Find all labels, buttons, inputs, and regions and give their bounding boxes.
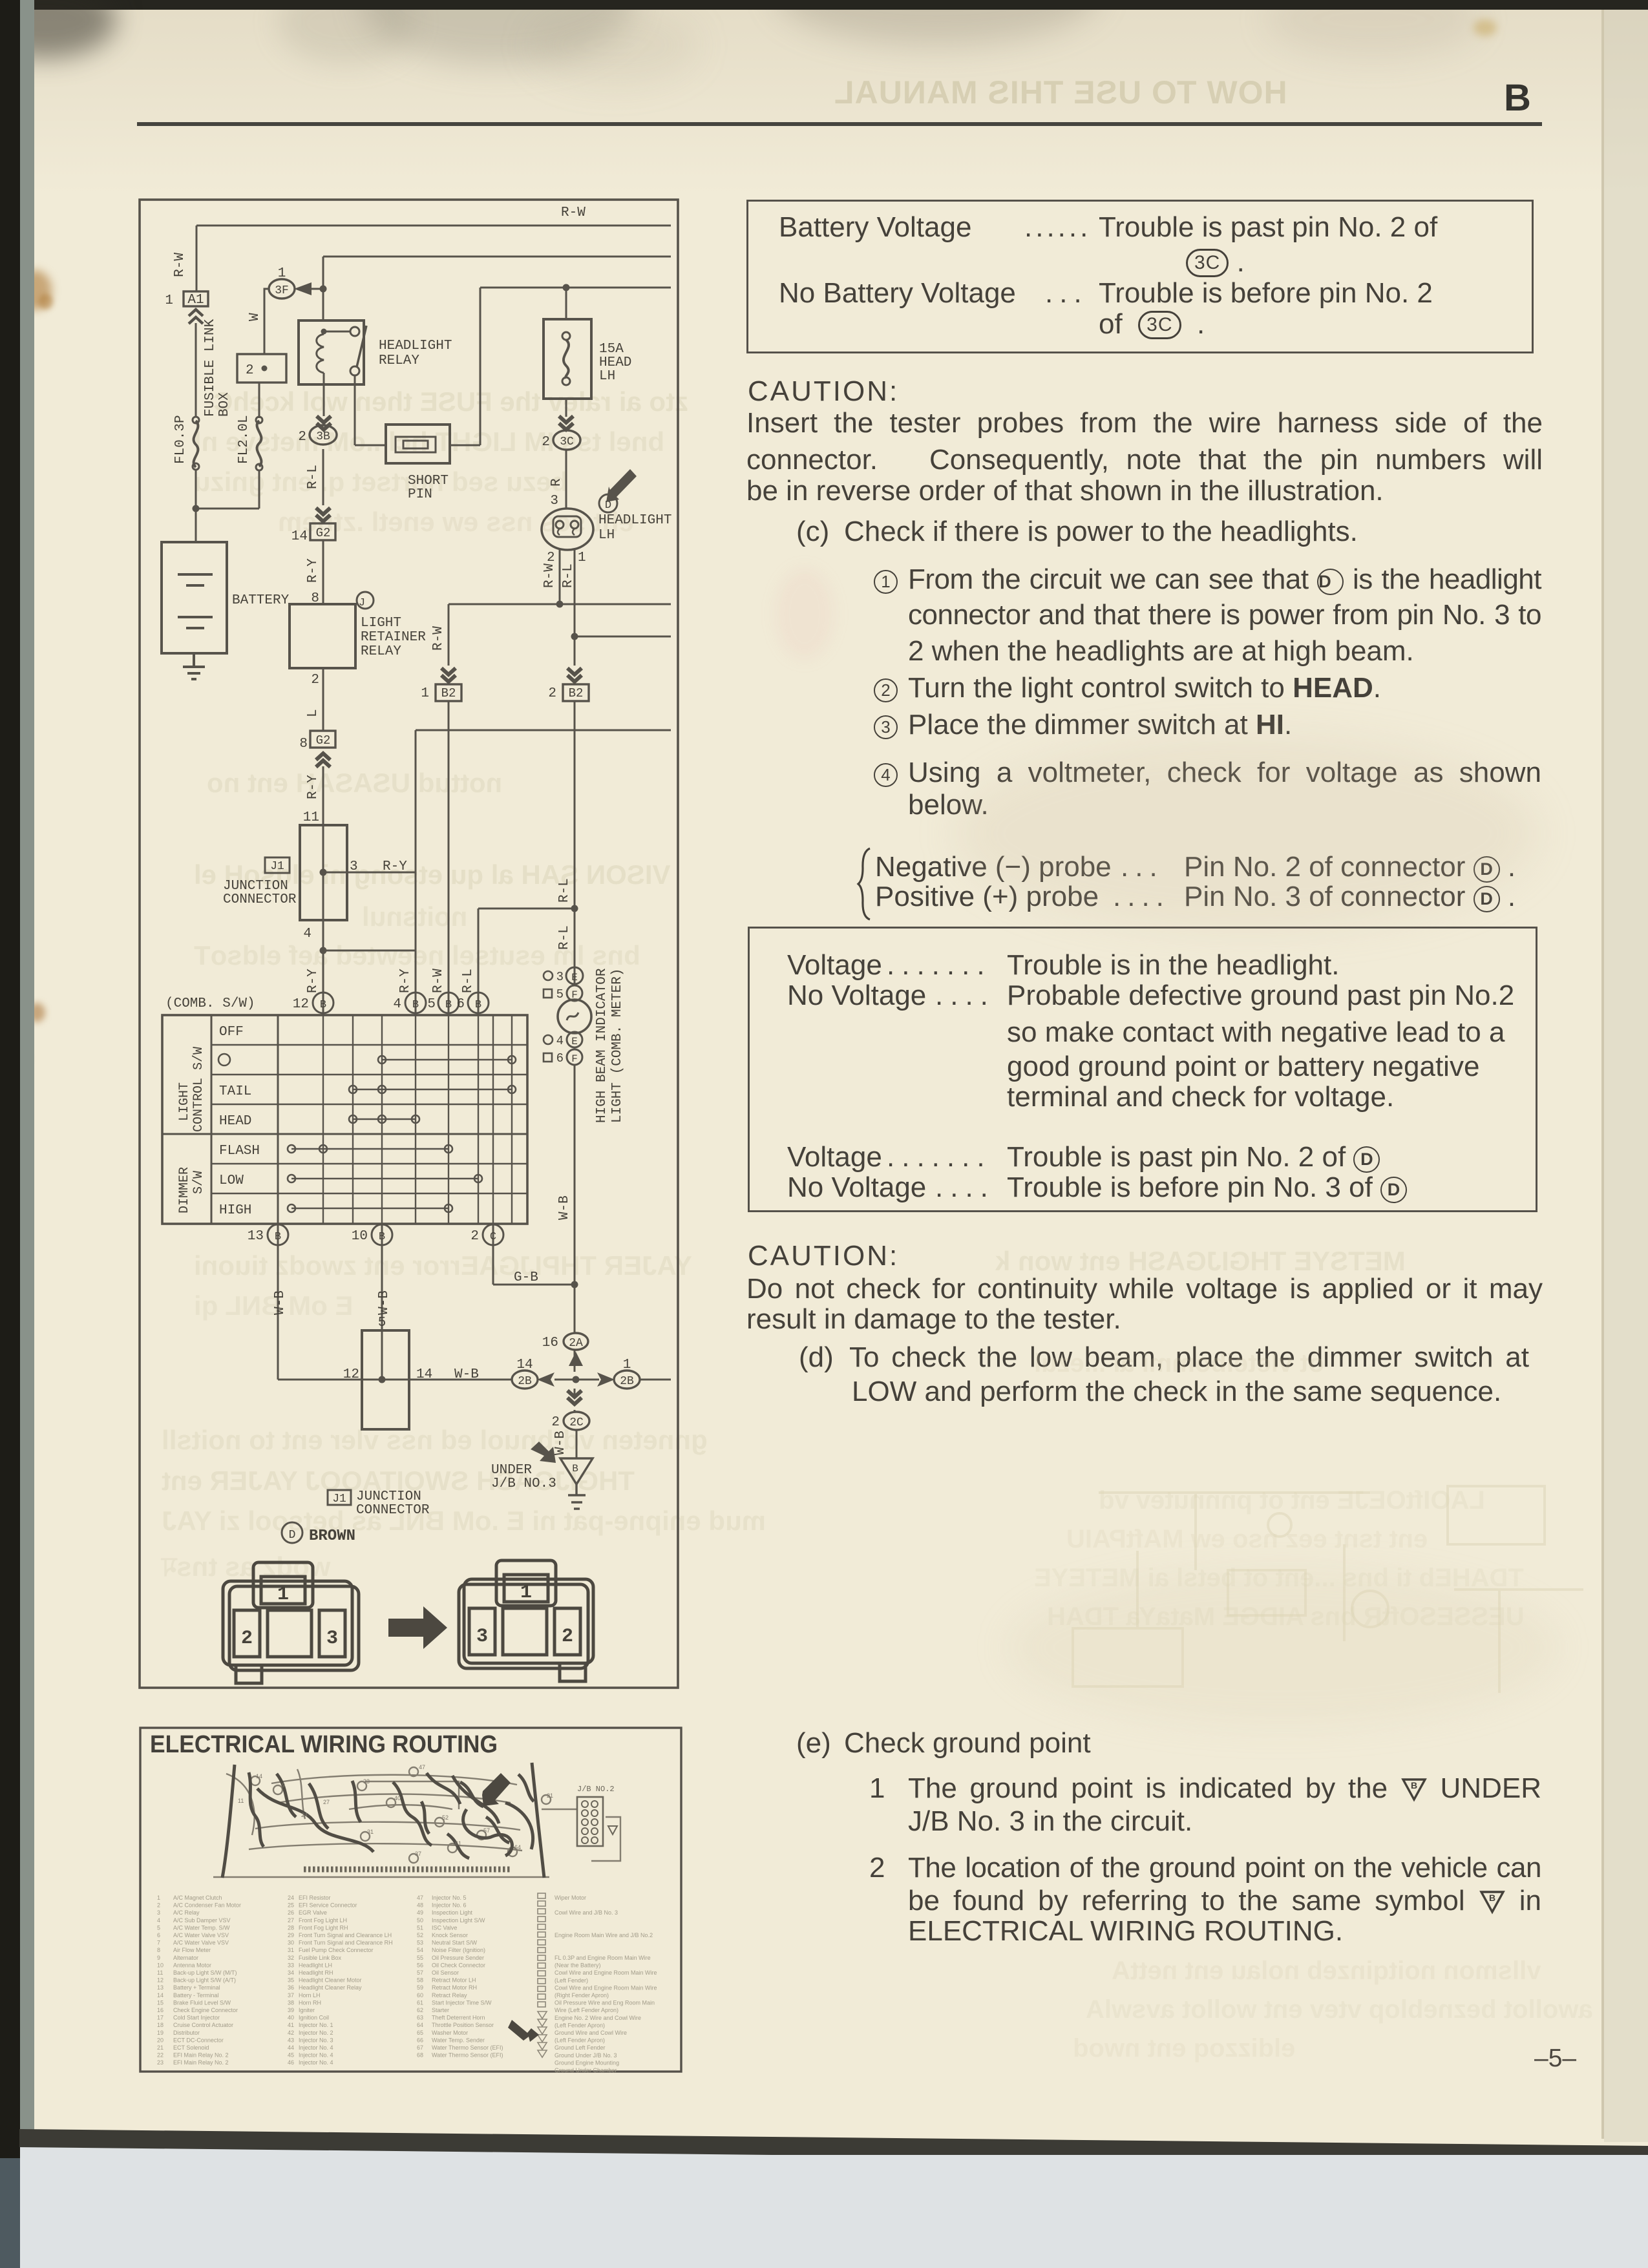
svg-text:B: B <box>320 999 326 1011</box>
svg-text:JUNCTION: JUNCTION <box>223 879 288 894</box>
svg-text:3: 3 <box>350 859 358 874</box>
svg-text:B: B <box>572 1463 578 1475</box>
svg-text:HEAD: HEAD <box>219 1114 251 1129</box>
svg-text:W-B: W-B <box>377 1290 392 1315</box>
svg-text:37: 37 <box>415 1851 421 1857</box>
svg-text:14: 14 <box>516 1358 533 1372</box>
svg-text:BROWN: BROWN <box>309 1528 355 1545</box>
svg-text:C: C <box>490 1231 496 1243</box>
svg-text:CONNECTOR: CONNECTOR <box>356 1503 430 1518</box>
svg-text:F: F <box>571 989 578 1001</box>
svg-text:Wiper MotorCowl Wire and J/B N: Wiper MotorCowl Wire and J/B No. 3Engine… <box>555 1895 657 2074</box>
svg-text:2: 2 <box>542 435 550 450</box>
svg-text:2: 2 <box>311 673 319 688</box>
svg-text:3C: 3C <box>560 436 574 448</box>
svg-text:242526272829303132333435363738: 2425262728293031323334353637383940414243… <box>288 1895 294 2066</box>
svg-text:2: 2 <box>246 363 254 378</box>
svg-text:A1: A1 <box>187 293 204 308</box>
svg-text:D: D <box>605 499 611 512</box>
svg-text:1: 1 <box>520 1582 532 1604</box>
svg-text:4: 4 <box>303 927 312 941</box>
svg-text:2: 2 <box>298 430 306 445</box>
svg-text:27: 27 <box>323 1799 330 1805</box>
svg-text:G2: G2 <box>316 733 331 748</box>
svg-text:2: 2 <box>547 551 555 565</box>
svg-text:11: 11 <box>303 810 319 825</box>
svg-text:123456789101112131415161718192: 1234567891011121314151617181920212223 <box>157 1895 164 2066</box>
svg-text:LH: LH <box>599 369 615 384</box>
svg-text:3: 3 <box>556 970 564 984</box>
svg-text:G-B: G-B <box>514 1270 538 1285</box>
svg-text:J1: J1 <box>270 860 284 873</box>
svg-text:B: B <box>275 1231 281 1243</box>
svg-text:G2: G2 <box>316 526 331 540</box>
svg-text:D: D <box>289 1529 296 1542</box>
svg-text:R-L: R-L <box>557 925 572 950</box>
svg-text:14: 14 <box>291 529 308 544</box>
svg-text:3: 3 <box>550 494 558 509</box>
svg-text:RETAINER: RETAINER <box>361 630 426 645</box>
svg-text:3F: 3F <box>275 284 289 297</box>
svg-text:1: 1 <box>165 293 173 308</box>
svg-text:LIGHT: LIGHT <box>177 1082 192 1121</box>
svg-text:40: 40 <box>394 1795 401 1801</box>
svg-text:12: 12 <box>343 1367 359 1382</box>
svg-text:L: L <box>306 709 321 717</box>
svg-text:HEADLIGHT: HEADLIGHT <box>379 339 452 353</box>
svg-text:E: E <box>571 972 578 983</box>
svg-text:9: 9 <box>282 1782 285 1789</box>
svg-text:BATTERY: BATTERY <box>232 593 290 608</box>
svg-text:DIMMER: DIMMER <box>177 1167 192 1213</box>
svg-text:FL2.0L: FL2.0L <box>237 415 251 464</box>
svg-text:6: 6 <box>456 997 465 1012</box>
svg-text:8: 8 <box>299 737 308 751</box>
svg-text:5: 5 <box>378 1316 386 1330</box>
svg-text:1: 1 <box>623 1358 631 1372</box>
svg-text:2: 2 <box>241 1628 253 1650</box>
svg-text:CONTROL S/W: CONTROL S/W <box>191 1047 206 1132</box>
svg-text:R: R <box>549 478 564 487</box>
svg-text:E: E <box>571 1036 578 1047</box>
svg-text:61: 61 <box>455 1840 461 1847</box>
svg-text:4: 4 <box>556 1034 564 1048</box>
svg-text:11: 11 <box>238 1798 244 1804</box>
svg-text:A/C Magnet ClutchA/C Condenser: A/C Magnet ClutchA/C Condenser Fan Motor… <box>173 1895 241 2066</box>
svg-text:HIGH: HIGH <box>219 1203 251 1218</box>
svg-text:J/B NO.3: J/B NO.3 <box>491 1476 556 1491</box>
svg-text:16: 16 <box>542 1336 558 1350</box>
svg-text:RELAY: RELAY <box>361 644 401 659</box>
svg-text:2C: 2C <box>569 1416 584 1429</box>
svg-text:1: 1 <box>278 266 286 281</box>
svg-text:HEAD: HEAD <box>599 355 631 370</box>
svg-text:31: 31 <box>367 1829 374 1835</box>
svg-text:FL0.3P: FL0.3P <box>173 415 188 464</box>
svg-text:474849505152535455565758596061: 4748495051525354555657585960616263646566… <box>417 1895 423 2059</box>
svg-text:LOW: LOW <box>219 1173 244 1188</box>
svg-text:CONNECTOR: CONNECTOR <box>223 892 297 907</box>
svg-text:R-W: R-W <box>431 969 446 993</box>
svg-text:21: 21 <box>547 1792 553 1799</box>
svg-text:R-L: R-L <box>557 878 572 903</box>
svg-text:R-Y: R-Y <box>306 775 321 799</box>
svg-text:2B: 2B <box>620 1375 634 1388</box>
svg-text:R-W: R-W <box>431 626 446 651</box>
svg-text:52: 52 <box>442 1814 449 1821</box>
svg-text:W-B: W-B <box>553 1431 568 1455</box>
svg-text:1: 1 <box>421 686 429 701</box>
svg-text:ELECTRICAL WIRING ROUTING: ELECTRICAL WIRING ROUTING <box>150 1731 498 1758</box>
svg-text:5: 5 <box>556 987 564 1002</box>
svg-text:64: 64 <box>514 1844 521 1851</box>
svg-text:TAIL: TAIL <box>219 1084 251 1099</box>
svg-text:6: 6 <box>556 1051 564 1066</box>
svg-text:B2: B2 <box>441 686 456 700</box>
svg-text:FUSIBLE LINK: FUSIBLE LINK <box>203 319 218 417</box>
svg-text:14: 14 <box>256 1773 262 1780</box>
svg-text:5: 5 <box>427 997 436 1012</box>
svg-text:B: B <box>445 999 452 1011</box>
svg-text:B2: B2 <box>569 686 584 700</box>
svg-text:8: 8 <box>311 591 319 606</box>
svg-text:R-L: R-L <box>461 969 476 993</box>
svg-text:2: 2 <box>548 686 556 701</box>
svg-text:(COMB. S/W): (COMB. S/W) <box>165 996 255 1011</box>
svg-text:R-W: R-W <box>561 205 586 220</box>
svg-text:BOX: BOX <box>217 392 232 417</box>
svg-text:R-Y: R-Y <box>306 969 321 993</box>
svg-text:57: 57 <box>483 1827 490 1834</box>
svg-text:SHORT: SHORT <box>408 474 449 488</box>
svg-text:R-W: R-W <box>542 563 557 588</box>
svg-text:B: B <box>379 1231 385 1243</box>
svg-text:R-Y: R-Y <box>383 859 407 874</box>
svg-text:OFF: OFF <box>219 1025 244 1040</box>
svg-text:1: 1 <box>578 551 586 565</box>
svg-text:1: 1 <box>277 1584 289 1606</box>
svg-text:S/W: S/W <box>191 1171 206 1194</box>
svg-text:HEADLIGHT: HEADLIGHT <box>598 513 671 528</box>
svg-text:LIGHT: LIGHT <box>361 616 401 631</box>
svg-text:UNDER: UNDER <box>491 1463 532 1478</box>
svg-text:3: 3 <box>326 1628 338 1650</box>
svg-text:HIGH BEAM INDICATOR: HIGH BEAM INDICATOR <box>595 968 609 1123</box>
svg-text:Injector No. 5Injector No. 6In: Injector No. 5Injector No. 6Inspection L… <box>432 1895 503 2059</box>
svg-text:2: 2 <box>562 1626 573 1648</box>
svg-text:J: J <box>359 597 365 609</box>
svg-text:2A: 2A <box>569 1337 583 1350</box>
svg-text:10: 10 <box>352 1229 368 1244</box>
svg-text:24: 24 <box>301 1812 308 1818</box>
svg-text:3B: 3B <box>316 430 330 443</box>
svg-text:14: 14 <box>416 1367 432 1382</box>
svg-text:4: 4 <box>393 997 401 1012</box>
svg-text:B: B <box>412 999 419 1011</box>
svg-text:47: 47 <box>419 1764 425 1770</box>
svg-text:B: B <box>475 999 481 1011</box>
svg-text:LIGHT (COMB. METER): LIGHT (COMB. METER) <box>610 969 625 1123</box>
svg-text:F: F <box>571 1053 578 1065</box>
svg-text:W-B: W-B <box>454 1367 479 1382</box>
svg-text:J1: J1 <box>332 1493 346 1506</box>
svg-text:W-B: W-B <box>557 1195 572 1220</box>
svg-text:3: 3 <box>476 1626 488 1648</box>
svg-text:33: 33 <box>363 1778 370 1785</box>
svg-text:13: 13 <box>248 1229 264 1244</box>
svg-text:J/B NO.2: J/B NO.2 <box>577 1785 615 1794</box>
svg-text:12: 12 <box>293 997 309 1012</box>
svg-text:FLASH: FLASH <box>219 1144 260 1159</box>
svg-text:JUNCTION: JUNCTION <box>356 1489 421 1504</box>
svg-text:W-B: W-B <box>273 1290 288 1315</box>
svg-text:W: W <box>248 313 262 321</box>
svg-text:2: 2 <box>551 1415 560 1430</box>
svg-text:R-Y: R-Y <box>398 969 413 993</box>
svg-text:RELAY: RELAY <box>379 353 419 368</box>
svg-text:EFI ResistorEFI Service Connec: EFI ResistorEFI Service ConnectorEGR Val… <box>299 1895 393 2066</box>
svg-text:R-W: R-W <box>173 253 187 277</box>
svg-text:R-Y: R-Y <box>306 558 321 583</box>
svg-text:PIN: PIN <box>408 487 432 502</box>
svg-text:LH: LH <box>598 528 615 543</box>
svg-text:2B: 2B <box>518 1375 532 1388</box>
svg-text:15A: 15A <box>599 342 624 357</box>
svg-text:R-L: R-L <box>306 465 321 489</box>
svg-text:2: 2 <box>470 1229 479 1244</box>
svg-text:R-L: R-L <box>561 563 576 588</box>
